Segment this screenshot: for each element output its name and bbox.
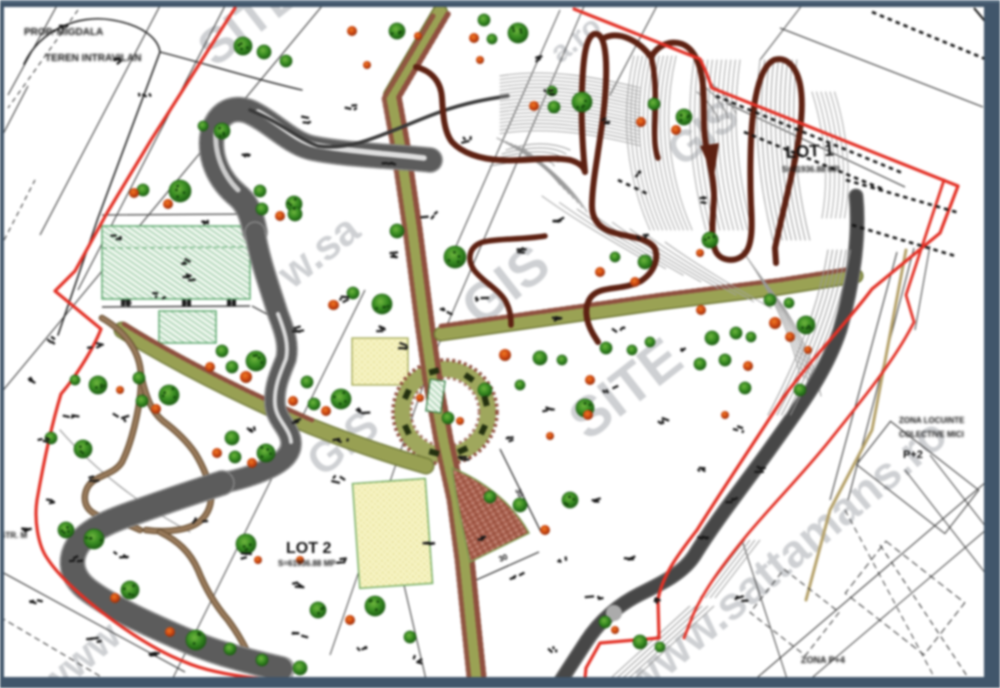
svg-text:ZONA LOCUINTE: ZONA LOCUINTE xyxy=(899,416,965,425)
svg-text:S=61936.88 MP: S=61936.88 MP xyxy=(278,559,336,568)
svg-text:LOT 1: LOT 1 xyxy=(785,140,834,161)
svg-text:COLECTIVE MICI: COLECTIVE MICI xyxy=(899,430,964,439)
svg-text:S=41936.88 MP: S=41936.88 MP xyxy=(782,165,840,174)
svg-text:P+2: P+2 xyxy=(903,449,923,461)
svg-text:LOT 2: LOT 2 xyxy=(286,540,331,557)
svg-text:TEREN INTRAVILAN: TEREN INTRAVILAN xyxy=(45,53,141,64)
svg-text:ZONA P+4: ZONA P+4 xyxy=(801,655,845,665)
svg-text:STR. M: STR. M xyxy=(0,531,27,540)
svg-text:55: 55 xyxy=(228,300,236,307)
svg-text:55: 55 xyxy=(124,300,132,307)
svg-text:55: 55 xyxy=(183,300,191,307)
svg-text:PROP. MIGDALA: PROP. MIGDALA xyxy=(24,27,103,38)
